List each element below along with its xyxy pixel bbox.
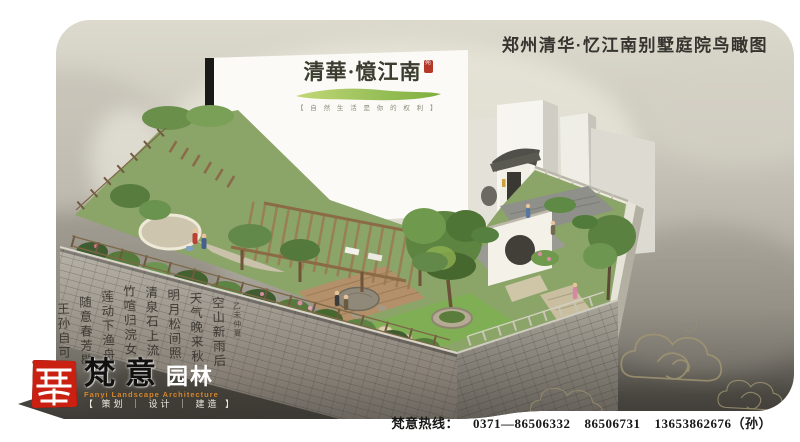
company-services: 【 策划 ｜ 设计 ｜ 建造 】: [84, 400, 237, 409]
calligraphy-column: 明月松间照: [165, 288, 180, 361]
company-logo: 梵意园林 Fanyi Landscape Architecture 【 策划 ｜…: [30, 358, 237, 410]
hotline-contact: 梵意热线：0371—865063328650673113653862676（孙）: [391, 413, 772, 432]
calligraphy-column: 清泉石上流: [143, 286, 158, 359]
hotline-phone-2: 86506731: [584, 416, 640, 431]
company-name-block: 园林: [166, 364, 214, 389]
hotline-label: 梵意热线：: [391, 416, 459, 431]
calligraphy-column: 天气晚来秋: [187, 292, 202, 365]
brand-name: 清華·憶江南: [303, 60, 421, 84]
hotline-phone-3: 13653862676（孙）: [654, 416, 772, 431]
company-english-name: Fanyi Landscape Architecture: [84, 391, 237, 399]
calligraphy-column: 竹喧归浣女: [121, 284, 136, 357]
company-name-script: 梵意: [84, 356, 166, 391]
building-brand-logo: 清華·憶江南苑 【 自 然 生 活 是 你 的 权 利 】: [284, 56, 452, 112]
poster-title: 郑州清华·忆江南别墅庭院鸟瞰图: [502, 31, 768, 56]
calligraphy-signature: 乙未仲夏: [232, 302, 241, 338]
brand-seal-stamp: 苑: [424, 60, 433, 73]
brand-tagline: 【 自 然 生 活 是 你 的 权 利 】: [284, 102, 452, 112]
calligraphy-column: 莲动下渔舟: [99, 290, 114, 363]
poster-page: 郑州清华·忆江南别墅庭院鸟瞰图 清華·憶江南苑 【 自 然 生 活 是 你 的 …: [0, 0, 800, 442]
hotline-phone-1: 0371—86506332: [473, 416, 571, 431]
brush-stroke-icon: [292, 87, 444, 101]
company-seal-icon: [30, 358, 78, 410]
